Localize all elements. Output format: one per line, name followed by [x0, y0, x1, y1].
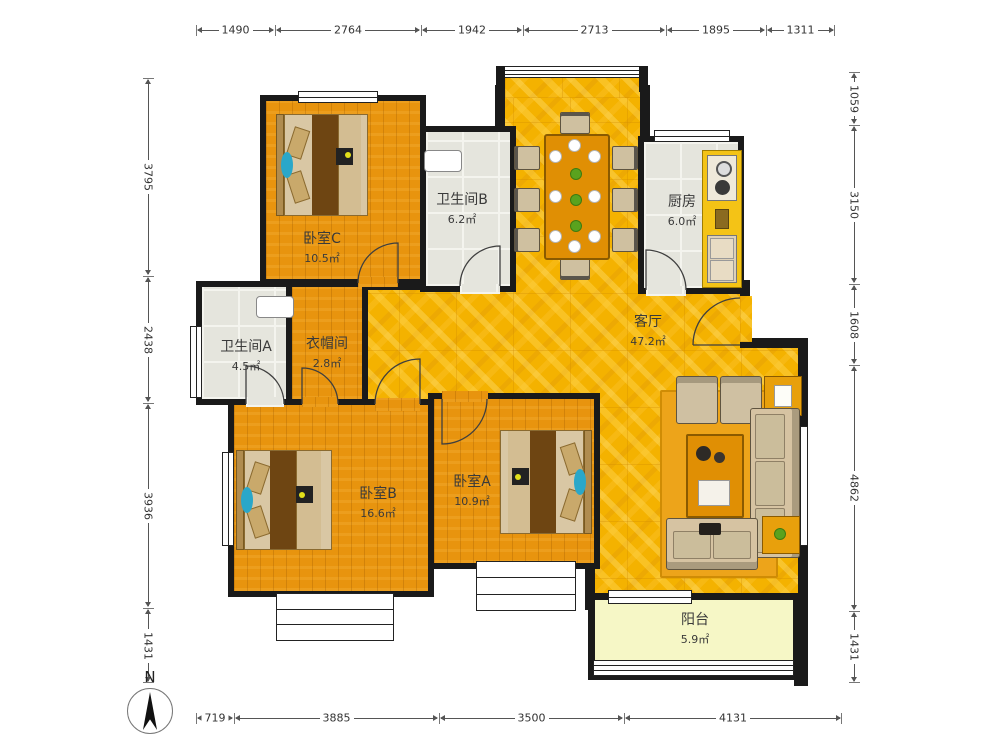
table-plant [570, 168, 582, 180]
dim-segment: 3936 [140, 403, 156, 608]
room-name: 卧室A [453, 471, 491, 491]
burner [716, 161, 732, 177]
plate [549, 230, 562, 243]
chair [514, 188, 540, 212]
plate [549, 150, 562, 163]
room-area: 10.9㎡ [453, 493, 491, 509]
blanket [270, 451, 296, 549]
dot [515, 474, 521, 480]
room-area: 4.5㎡ [220, 358, 272, 374]
door-opening [375, 398, 420, 411]
room-name: 厨房 [668, 191, 697, 211]
bed-tray [296, 486, 313, 503]
plate [588, 190, 601, 203]
door-opening [442, 391, 488, 402]
label-bathroom-b: 卫生间B 6.2㎡ [436, 189, 488, 227]
coffee-table [686, 434, 744, 518]
accent-pillow [281, 152, 293, 178]
bowl [696, 446, 711, 461]
sofa-cushion [755, 414, 785, 459]
door-opening [302, 397, 338, 407]
dim-segment: 2438 [140, 276, 156, 403]
dim-segment: 1311 [766, 22, 835, 38]
dim-segment: 3500 [439, 710, 624, 726]
room-name: 阳台 [681, 609, 710, 629]
bed-bedroom-c [276, 114, 368, 216]
label-bedroom-c: 卧室C 10.5㎡ [303, 228, 341, 266]
dim-segment: 3795 [140, 78, 156, 276]
dim-chain-right: 1059 3150 1608 4862 1431 [846, 72, 862, 683]
plate [549, 190, 562, 203]
label-bedroom-a: 卧室A 10.9㎡ [453, 471, 491, 509]
label-cloakroom: 衣帽间 2.8㎡ [306, 333, 348, 371]
plate [568, 139, 581, 152]
wall-corner [794, 600, 808, 686]
room-area: 10.5㎡ [303, 250, 341, 266]
dim-segment: 3150 [846, 125, 862, 284]
sofa-cushion [713, 531, 751, 559]
table-plant [570, 194, 582, 206]
accent-pillow [574, 469, 586, 495]
bay-window-pier [496, 66, 505, 92]
room-name: 衣帽间 [306, 333, 348, 353]
bay-window-dining [498, 66, 646, 78]
room-area: 6.2㎡ [436, 211, 488, 227]
dim-segment: 4131 [624, 710, 842, 726]
sofa-cushion [673, 531, 711, 559]
bed-tray [512, 468, 529, 485]
sink-basin [710, 260, 734, 281]
dim-segment: 4862 [846, 365, 862, 611]
chair [514, 146, 540, 170]
window-bathroom-a-left [190, 326, 202, 398]
chair [560, 258, 590, 280]
dim-segment: 2713 [523, 22, 666, 38]
label-kitchen: 厨房 6.0㎡ [668, 191, 697, 229]
window-balcony-bottom [593, 660, 794, 676]
label-living-room: 客厅 47.2㎡ [630, 311, 666, 349]
dot [299, 492, 305, 498]
room-area: 2.8㎡ [306, 355, 348, 371]
bed-tray [336, 148, 353, 165]
bay-window-bedroom-b [276, 593, 394, 641]
door-opening [460, 284, 500, 294]
blanket [530, 431, 556, 533]
dim-segment: 3885 [234, 710, 439, 726]
dim-chain-top: 1490 2764 1942 2713 1895 1311 [196, 22, 835, 38]
dim-segment: 2764 [275, 22, 421, 38]
room-area: 47.2㎡ [630, 333, 666, 349]
dim-segment: 1059 [846, 72, 862, 125]
tray [698, 480, 730, 506]
sofa-cushion [755, 461, 785, 506]
sliding-door-balcony [608, 590, 692, 604]
room-name: 卧室C [303, 228, 341, 248]
floor-plan: 1490 2764 1942 2713 1895 1311 719 3885 3… [0, 0, 1000, 750]
counter-item [715, 209, 729, 229]
washbasin-bathroom-a [256, 296, 294, 318]
chair [612, 228, 638, 252]
window-kitchen-top [654, 130, 730, 142]
cushion-dark [699, 523, 721, 535]
room-name: 卫生间A [220, 336, 272, 356]
sink [707, 235, 737, 283]
plant [774, 528, 786, 540]
dim-segment: 1490 [196, 22, 275, 38]
label-bedroom-b: 卧室B 16.6㎡ [359, 483, 397, 521]
door-opening [246, 397, 284, 407]
stove [707, 155, 737, 201]
dim-segment: 1895 [666, 22, 766, 38]
burner [715, 180, 730, 195]
bed-bedroom-b [236, 450, 332, 550]
compass-circle [127, 688, 173, 734]
washbasin-bathroom-b [424, 150, 462, 172]
side-table [762, 516, 800, 554]
label-balcony: 阳台 5.9㎡ [681, 609, 710, 647]
label-bathroom-a: 卫生间A 4.5㎡ [220, 336, 272, 374]
room-name: 卫生间B [436, 189, 488, 209]
entry-door-opening [740, 296, 752, 342]
plate [588, 230, 601, 243]
dim-segment: 1942 [421, 22, 523, 38]
window-bedroom-b-left [222, 452, 234, 546]
room-area: 5.9㎡ [681, 631, 710, 647]
window-bedroom-c-top [298, 91, 378, 103]
dim-chain-bottom: 719 3885 3500 4131 [196, 710, 842, 726]
dim-segment: 1431 [846, 611, 862, 683]
chair [560, 112, 590, 134]
blanket [312, 115, 338, 215]
bay-window-pier [639, 66, 648, 92]
room-name: 客厅 [630, 311, 666, 331]
bowl [714, 452, 725, 463]
dot [345, 152, 351, 158]
dim-segment: 719 [196, 710, 234, 726]
bed-bedroom-a [500, 430, 592, 534]
room-area: 6.0㎡ [668, 213, 697, 229]
armchair [676, 376, 718, 424]
bay-window-bedroom-a [476, 561, 576, 611]
accent-pillow [241, 487, 253, 513]
plate [568, 240, 581, 253]
door-opening [646, 286, 686, 296]
dim-chain-left: 3795 2438 3936 1431 [140, 78, 156, 683]
sofa-loveseat [666, 518, 758, 570]
plate [588, 150, 601, 163]
room-name: 卧室B [359, 483, 397, 503]
chair [612, 188, 638, 212]
kitchen-counter [702, 150, 742, 288]
table-plant [570, 220, 582, 232]
sink-basin [710, 238, 734, 259]
door-opening [358, 277, 398, 287]
room-area: 16.6㎡ [359, 505, 397, 521]
compass-label: N [118, 668, 182, 686]
chair [514, 228, 540, 252]
runner [338, 115, 361, 215]
north-arrow-icon [139, 692, 161, 730]
chair [612, 146, 638, 170]
compass: N [118, 668, 182, 734]
dim-segment: 1608 [846, 284, 862, 365]
book [774, 385, 792, 407]
